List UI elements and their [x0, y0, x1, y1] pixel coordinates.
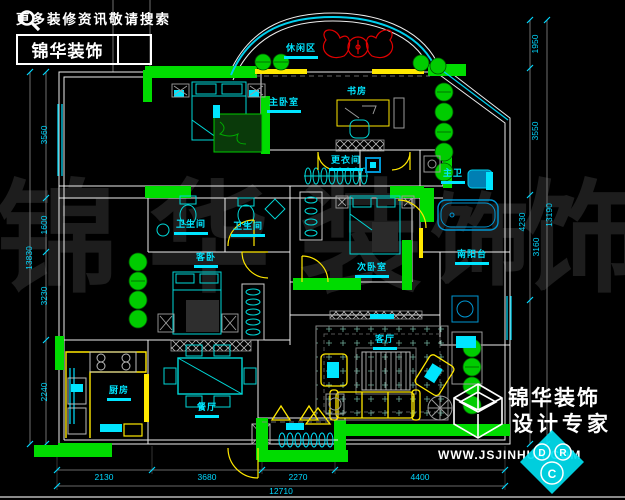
floorplan-canvas: 锦 华 装 饰 饰: [0, 0, 625, 500]
room-label-dressing: 更衣间: [329, 153, 363, 171]
room-label-dining: 餐厅: [195, 400, 219, 418]
header-branding: 更多装修资讯敬请搜索 锦华装饰: [16, 8, 171, 65]
dim-left-total: 13830: [24, 246, 34, 270]
dim-right-3: 4230: [517, 213, 527, 232]
footer-branding: 锦华装饰 设计专家 WWW.JSJINHUA.COM D R C: [450, 380, 625, 500]
dim-right-1: 1950: [530, 35, 540, 54]
compass-letter: C: [548, 467, 557, 481]
gray-details: [158, 84, 414, 332]
room-label-living: 客厅: [373, 332, 397, 350]
room-label-bath2: 卫生间: [231, 219, 265, 237]
living-room: [272, 326, 455, 424]
dim-right-total: 13190: [544, 203, 554, 227]
dim-left-4: 2240: [39, 383, 49, 402]
dim-bottom-2: 3680: [198, 472, 217, 482]
dim-left-1: 3560: [39, 126, 49, 145]
dim-right-4: 3160: [531, 238, 541, 257]
dim-bottom-1: 2130: [95, 472, 114, 482]
dim-bottom-total: 12710: [269, 486, 293, 496]
dim-right-2: 3550: [530, 122, 540, 141]
room-label-kitchen: 厨房: [107, 383, 131, 401]
leisure-decor: [323, 30, 392, 58]
room-label-bath1: 卫生间: [174, 217, 208, 235]
room-label-second: 次卧室: [355, 260, 389, 278]
dim-left-3: 3230: [39, 287, 49, 306]
room-label-master: 主卧室: [267, 95, 301, 113]
room-label-study: 书房: [347, 84, 367, 97]
header-logo-text: 锦华装饰: [18, 36, 117, 63]
dim-bottom-4: 4400: [411, 472, 430, 482]
header-logo: 锦华装饰: [16, 34, 152, 65]
room-label-south-balcony: 南阳台: [455, 247, 489, 265]
compass-icon: D R C: [492, 428, 612, 500]
dim-bottom-3: 2270: [289, 472, 308, 482]
room-label-leisure: 休闲区: [284, 41, 318, 59]
search-icon: [117, 36, 150, 63]
room-label-master-bath: 主卫: [441, 166, 465, 184]
compass-letter: R: [559, 448, 567, 459]
dim-left-2: 1600: [39, 216, 49, 235]
compass-letter: D: [538, 448, 545, 459]
room-label-guest: 客卧: [194, 250, 218, 268]
